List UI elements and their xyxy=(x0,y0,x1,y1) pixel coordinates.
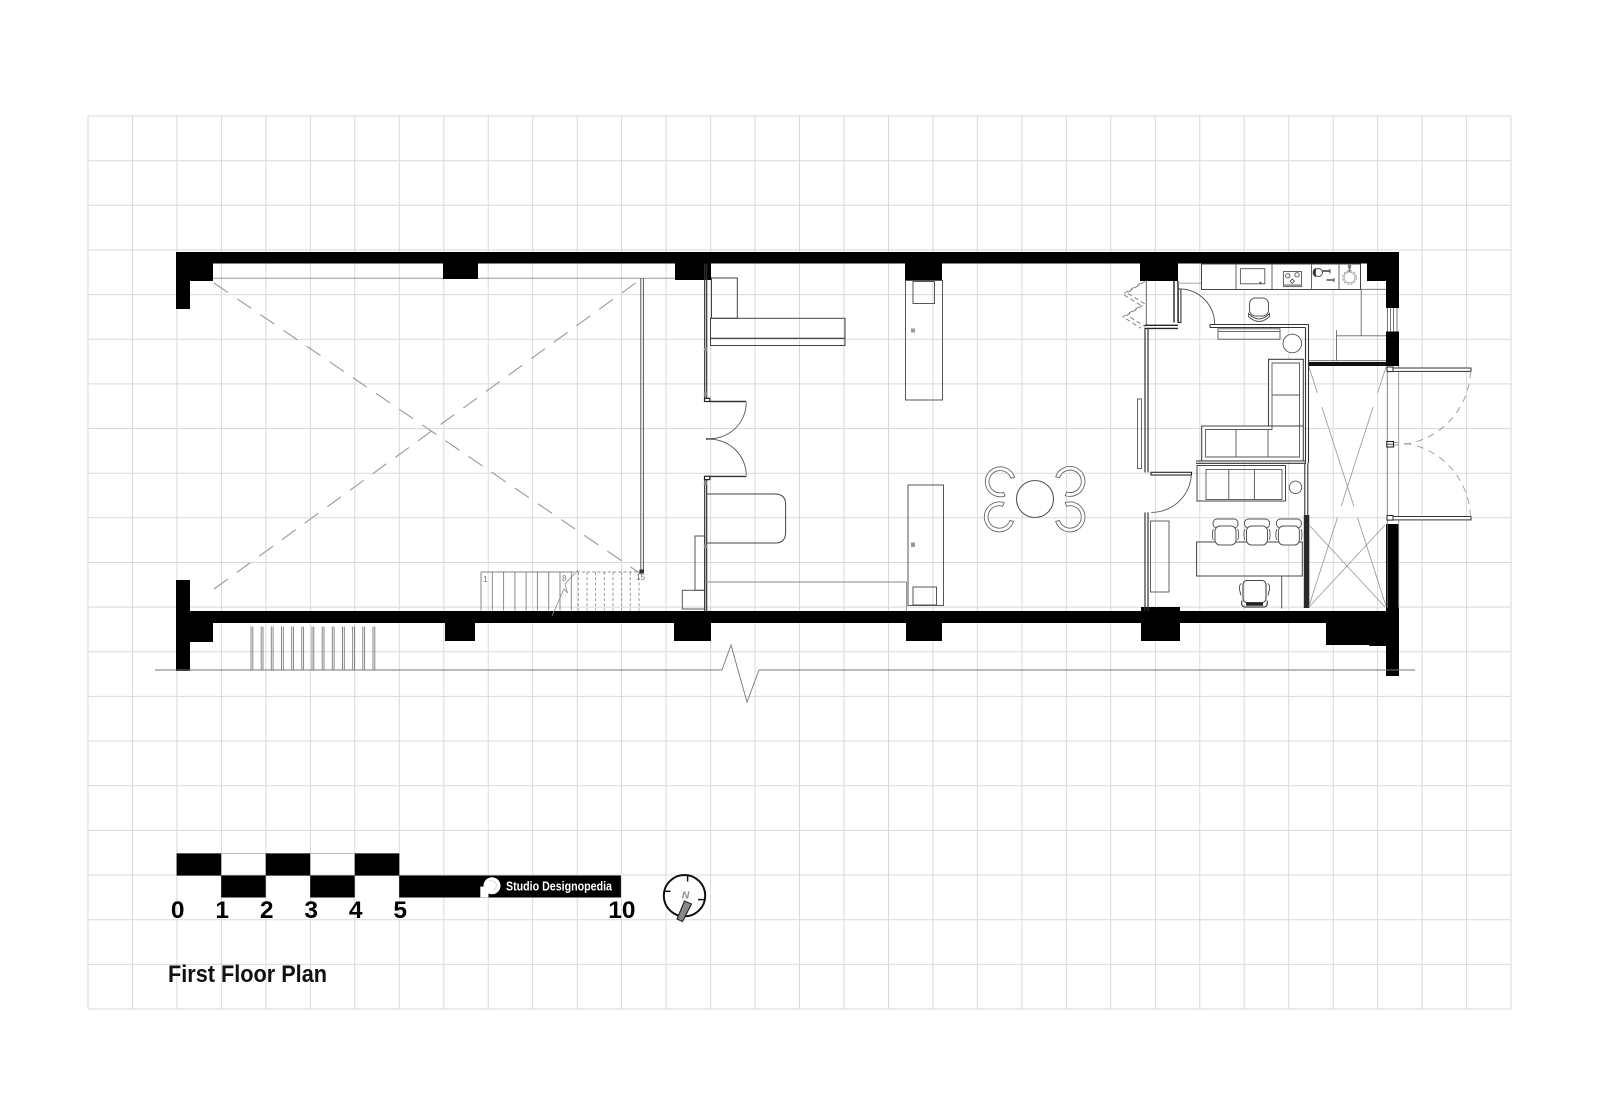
svg-text:5: 5 xyxy=(393,897,407,924)
svg-text:4: 4 xyxy=(349,897,363,924)
svg-text:2: 2 xyxy=(260,897,274,924)
svg-text:Studio Designopedia: Studio Designopedia xyxy=(506,879,613,894)
svg-text:N: N xyxy=(682,890,690,902)
svg-text:First Floor Plan: First Floor Plan xyxy=(168,961,327,988)
svg-text:1: 1 xyxy=(483,575,488,584)
svg-text:8: 8 xyxy=(562,574,567,583)
svg-text:3: 3 xyxy=(304,897,318,924)
svg-text:1: 1 xyxy=(215,897,229,924)
svg-text:10: 10 xyxy=(608,897,635,924)
svg-text:15: 15 xyxy=(636,573,645,582)
svg-text:0: 0 xyxy=(171,897,185,924)
